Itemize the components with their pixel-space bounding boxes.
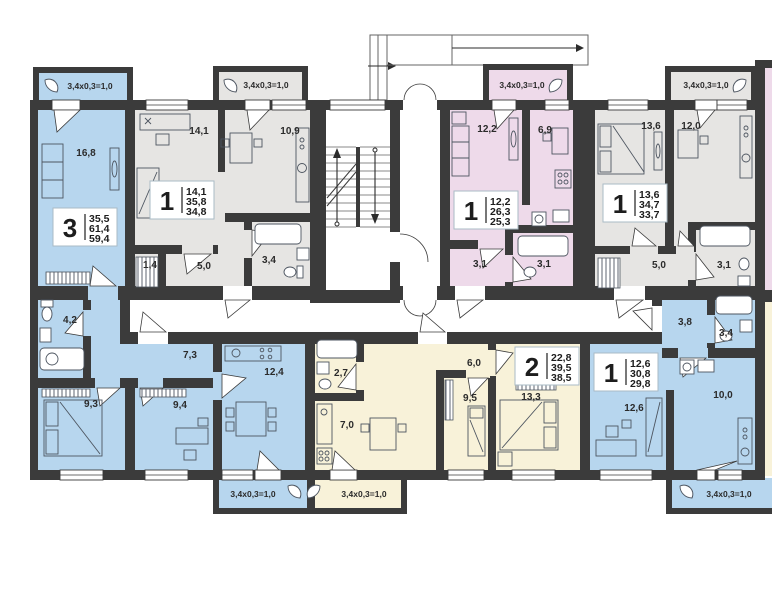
apartment-number: 1 <box>604 358 618 388</box>
room-area-label: 7,0 <box>340 420 354 431</box>
room-area-label: 1,4 <box>143 260 157 271</box>
sink-icon <box>317 362 329 374</box>
room-area-label: 5,0 <box>652 260 666 271</box>
apartment-number: 3 <box>63 213 77 243</box>
room-area-label: 13,3 <box>521 392 541 403</box>
apartment-stat-box: 2 22,8 39,5 38,5 <box>515 347 579 385</box>
apartment-number: 2 <box>525 352 539 382</box>
room-area-label: 12,4 <box>264 367 284 378</box>
balcony-size-label: 3,4x0,3=1,0 <box>341 489 386 499</box>
area-value: 59,4 <box>89 233 110 245</box>
room-area-label: 5,0 <box>197 261 211 272</box>
room-area-label: 3,4 <box>262 255 276 266</box>
apartment-stat-box: 1 12,2 26,3 25,3 <box>454 191 518 229</box>
room-area-label: 10,0 <box>713 390 733 401</box>
wardrobe-icon <box>42 389 90 397</box>
washing-machine-icon <box>532 212 546 226</box>
wardrobe-icon <box>445 380 453 420</box>
room-area-label: 6,9 <box>538 125 552 136</box>
bathtub-icon <box>255 224 301 244</box>
apartment-number: 1 <box>464 196 478 226</box>
balcony-size-label: 3,4x0,3=1,0 <box>243 80 288 90</box>
room-area-label: 3,1 <box>537 259 551 270</box>
room-area-label: 16,8 <box>76 148 96 159</box>
room-area-label: 12,6 <box>624 403 644 414</box>
room-area-label: 13,6 <box>641 121 661 132</box>
sink-icon <box>740 320 752 332</box>
room-area-label: 9,3 <box>84 399 98 410</box>
floor-plan: 3,4x0,3=1,0 3,4x0,3=1,0 3,4x0,3=1,0 3,4x… <box>0 0 772 600</box>
stair-stringer <box>356 147 360 227</box>
room-area-label: 9,4 <box>173 400 187 411</box>
area-value: 25,3 <box>490 216 511 228</box>
area-value: 29,8 <box>630 378 651 390</box>
sink-icon <box>553 210 569 222</box>
toilet-icon <box>284 266 303 278</box>
floor-plan-page: 3,4x0,3=1,0 3,4x0,3=1,0 3,4x0,3=1,0 3,4x… <box>0 0 772 600</box>
sink-icon <box>297 248 309 260</box>
bathtub-icon <box>700 226 750 246</box>
bathtub-icon <box>716 296 752 314</box>
closet-icon <box>598 258 620 288</box>
room-area-label: 9,5 <box>463 393 477 404</box>
toilet-icon <box>739 258 749 270</box>
room-area-label: 14,1 <box>189 126 209 137</box>
room-area-label: 3,4 <box>719 328 733 339</box>
balcony-size-label: 3,4x0,3=1,0 <box>706 489 751 499</box>
bathtub-icon <box>40 348 84 370</box>
room-area-label: 6,0 <box>467 358 481 369</box>
balcony-size-label: 3,4x0,3=1,0 <box>683 80 728 90</box>
toilet-icon <box>319 379 331 389</box>
apartment-stat-box: 1 13,6 34,7 33,7 <box>603 184 667 222</box>
apartment-number: 1 <box>160 186 174 216</box>
room-area-label: 4,2 <box>63 315 77 326</box>
apartment-stat-box: 3 35,5 61,4 59,4 <box>53 208 117 246</box>
apartment-stat-box: 1 14,1 35,8 34,8 <box>150 181 214 219</box>
wardrobe-icon <box>140 389 186 397</box>
room-area-label: 3,1 <box>717 260 731 271</box>
room-area-label: 7,3 <box>183 350 197 361</box>
room-area-label: 12,2 <box>477 124 497 135</box>
bathtub-icon <box>518 236 568 256</box>
apartment-number: 1 <box>613 189 627 219</box>
room-area-label: 12,0 <box>681 121 701 132</box>
area-value: 34,8 <box>186 206 207 218</box>
shelf-icon <box>46 272 90 284</box>
room-area-label: 10,9 <box>280 126 300 137</box>
sink-icon <box>698 360 714 372</box>
apartment-stat-box: 1 12,6 30,8 29,8 <box>594 353 658 391</box>
room-area-label: 3,1 <box>473 259 487 270</box>
room-area-label: 3,8 <box>678 317 692 328</box>
area-value: 38,5 <box>551 372 572 384</box>
balcony-size-label: 3,4x0,3=1,0 <box>67 81 112 91</box>
balcony-size-label: 3,4x0,3=1,0 <box>230 489 275 499</box>
toilet-icon <box>524 267 536 277</box>
washing-machine-icon <box>680 360 694 374</box>
sink-icon <box>40 328 51 342</box>
sink-icon <box>738 276 750 286</box>
toilet-icon <box>41 300 53 321</box>
bathtub-icon <box>317 340 357 358</box>
balcony-size-label: 3,4x0,3=1,0 <box>499 80 544 90</box>
area-value: 33,7 <box>639 209 660 221</box>
room-area-label: 2,7 <box>334 368 348 379</box>
